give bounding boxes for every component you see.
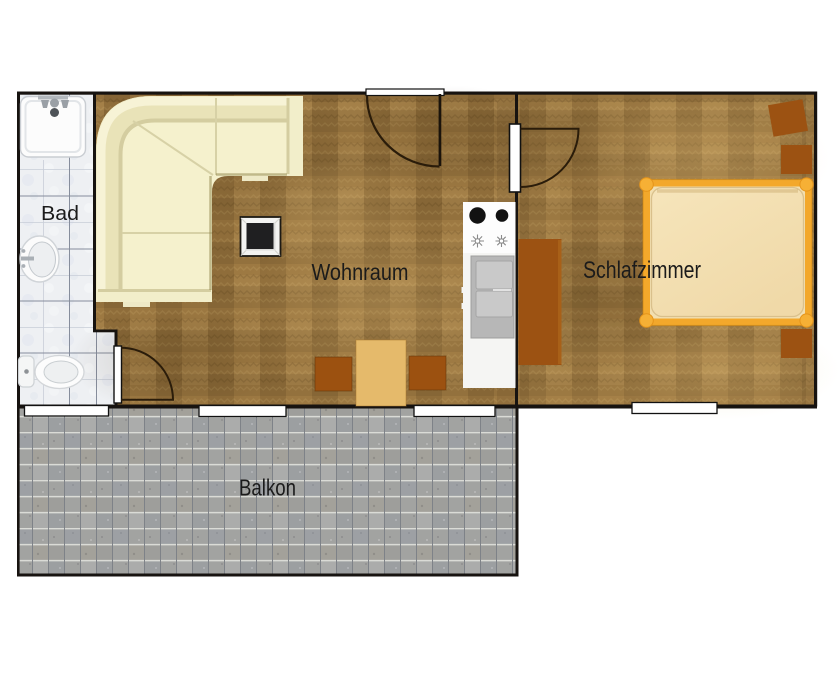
svg-text:Wohnraum: Wohnraum [312, 259, 409, 285]
svg-text:Bad: Bad [41, 202, 79, 225]
svg-text:Schlafzimmer: Schlafzimmer [583, 257, 701, 284]
svg-text:Balkon: Balkon [239, 475, 296, 501]
